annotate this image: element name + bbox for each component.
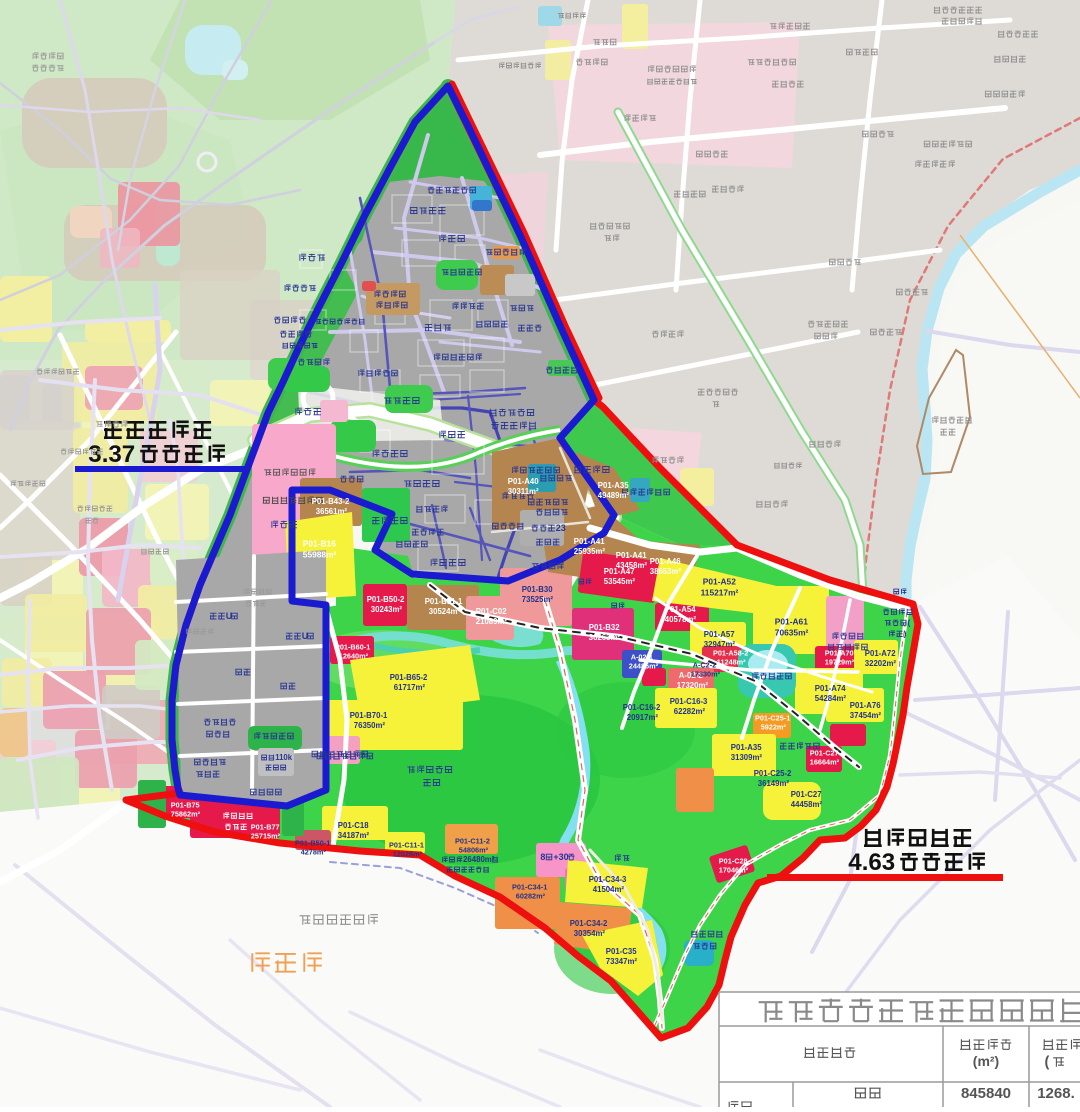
svg-text:P01-C02: P01-C02 [476, 607, 507, 616]
svg-text:73525m²: 73525m² [522, 595, 554, 604]
svg-text:P01-B32: P01-B32 [589, 623, 620, 632]
svg-text:P01-C16-3: P01-C16-3 [670, 697, 708, 706]
svg-text:P01-A61: P01-A61 [775, 617, 808, 627]
svg-text:P01-A70: P01-A70 [825, 649, 854, 658]
svg-text:P01-B70-1: P01-B70-1 [350, 711, 388, 720]
svg-text:23: 23 [556, 523, 566, 533]
svg-text:P01-A76: P01-A76 [850, 701, 881, 710]
svg-text:P01-C34-3: P01-C34-3 [589, 875, 627, 884]
svg-text:A-C2-2: A-C2-2 [693, 661, 717, 670]
svg-text:70635m²: 70635m² [775, 628, 809, 638]
svg-text:36263m²: 36263m² [589, 633, 621, 642]
svg-text:54806m²: 54806m² [459, 846, 489, 855]
svg-text:P01-C25-1: P01-C25-1 [755, 714, 790, 723]
svg-text:P01-A35: P01-A35 [731, 743, 762, 752]
svg-text:17320m²: 17320m² [677, 681, 709, 690]
svg-text:4278m²: 4278m² [301, 848, 327, 857]
svg-text:P01-A57: P01-A57 [704, 630, 735, 639]
svg-text:P01-C35: P01-C35 [606, 947, 637, 956]
svg-text:43458m²: 43458m² [616, 561, 648, 570]
svg-text:(: ( [908, 618, 911, 628]
svg-text:A-02-1: A-02-1 [631, 653, 653, 662]
svg-text:12640m²: 12640m² [339, 652, 369, 661]
svg-text:49489m²: 49489m² [598, 491, 630, 500]
svg-text:26480m²: 26480m² [463, 855, 495, 864]
svg-text:75862m²: 75862m² [171, 810, 201, 819]
svg-text:P01-A52: P01-A52 [703, 577, 736, 587]
svg-text:P01-A74: P01-A74 [815, 684, 846, 693]
svg-text:P01-B16: P01-B16 [303, 539, 336, 549]
svg-text:41504m²: 41504m² [593, 885, 625, 894]
svg-text:4.63: 4.63 [848, 849, 895, 876]
svg-text:32947m²: 32947m² [704, 640, 736, 649]
svg-text:115217m²: 115217m² [701, 588, 739, 598]
svg-text:P01-A46: P01-A46 [650, 557, 681, 566]
svg-text:P01-C34-1: P01-C34-1 [512, 883, 547, 892]
svg-text:34187m²: 34187m² [338, 831, 370, 840]
svg-text:P01-B51-1: P01-B51-1 [425, 597, 463, 606]
svg-text:25935m²: 25935m² [574, 547, 606, 556]
svg-text:P01-C34-2: P01-C34-2 [570, 919, 608, 928]
svg-text:P01-C11-2: P01-C11-2 [455, 837, 490, 846]
svg-text:P01-A72: P01-A72 [865, 649, 896, 658]
svg-text:17330m²: 17330m² [691, 670, 721, 679]
svg-text:P01-B75: P01-B75 [171, 801, 200, 810]
svg-text:60282m²: 60282m² [516, 892, 546, 901]
svg-text:11248m²: 11248m² [717, 658, 746, 667]
svg-text:P01-B43-2: P01-B43-2 [312, 497, 350, 506]
svg-text:30311m²: 30311m² [508, 487, 539, 496]
svg-text:P01-A35: P01-A35 [598, 481, 629, 490]
svg-text:31309m²: 31309m² [731, 753, 763, 762]
svg-text:P01-A41: P01-A41 [616, 551, 647, 560]
svg-text:30524m²: 30524m² [429, 607, 461, 616]
svg-text:P01-C28: P01-C28 [719, 857, 748, 866]
svg-text:36149m²: 36149m² [758, 779, 790, 788]
svg-text:): ) [904, 629, 907, 639]
svg-text:12028m²: 12028m² [393, 850, 423, 859]
svg-text:16664m²: 16664m² [810, 758, 840, 767]
svg-text:55988m²: 55988m² [303, 550, 337, 560]
svg-text:+30: +30 [553, 852, 568, 862]
svg-text:24485m²: 24485m² [629, 662, 659, 671]
svg-text:17046m²: 17046m² [719, 866, 749, 875]
svg-text:(: ( [1045, 1054, 1050, 1070]
svg-text:P01-C18: P01-C18 [338, 821, 369, 830]
svg-text:25715m²: 25715m² [251, 832, 281, 841]
svg-text:44458m²: 44458m² [791, 800, 823, 809]
svg-text:38653m²: 38653m² [650, 567, 682, 576]
svg-text:40578m²: 40578m² [665, 615, 697, 624]
svg-text:32202m²: 32202m² [865, 659, 897, 668]
svg-text:53545m²: 53545m² [604, 577, 636, 586]
svg-text:76350m²: 76350m² [354, 721, 386, 730]
svg-text:37454m²: 37454m² [850, 711, 882, 720]
svg-text:P01-A40: P01-A40 [508, 477, 539, 486]
svg-text:20917m²: 20917m² [627, 713, 659, 722]
svg-text:1268.: 1268. [1037, 1085, 1075, 1102]
svg-text:62282m²: 62282m² [674, 707, 706, 716]
svg-text:P01-B50-2: P01-B50-2 [367, 595, 405, 604]
svg-text:P01-B77: P01-B77 [251, 823, 280, 832]
svg-text:P01-B50-1: P01-B50-1 [295, 839, 330, 848]
svg-text:P01-B65-2: P01-B65-2 [390, 673, 428, 682]
svg-text:P01-A41: P01-A41 [574, 537, 605, 546]
svg-text:5922m²: 5922m² [761, 723, 787, 732]
svg-text:19729m²: 19729m² [825, 658, 855, 667]
svg-text:30354m²: 30354m² [574, 929, 606, 938]
svg-text:73347m²: 73347m² [606, 957, 638, 966]
svg-text:8: 8 [540, 852, 545, 862]
svg-text:P01-B30: P01-B30 [522, 585, 553, 594]
svg-text:(m²): (m²) [973, 1053, 999, 1069]
svg-text:P01-C25-2: P01-C25-2 [754, 769, 792, 778]
svg-text:845840: 845840 [961, 1085, 1011, 1102]
svg-text:P01-A58-2: P01-A58-2 [713, 649, 748, 658]
svg-text:P01-C11-1: P01-C11-1 [389, 841, 424, 850]
svg-text:3.37: 3.37 [88, 441, 135, 468]
svg-text:P01-B60-1: P01-B60-1 [335, 643, 370, 652]
svg-text:P01-A54: P01-A54 [665, 605, 696, 614]
svg-text:30243m²: 30243m² [371, 605, 403, 614]
svg-text:54284m²: 54284m² [815, 694, 847, 703]
svg-text:P01-C16-2: P01-C16-2 [623, 703, 661, 712]
svg-text:21089m²: 21089m² [476, 617, 508, 626]
svg-text:61717m²: 61717m² [394, 683, 426, 692]
svg-text:P01-C27: P01-C27 [791, 790, 822, 799]
svg-text:36561m²: 36561m² [316, 507, 348, 516]
svg-text:110k: 110k [275, 753, 293, 762]
svg-text:P01-C27: P01-C27 [810, 749, 839, 758]
